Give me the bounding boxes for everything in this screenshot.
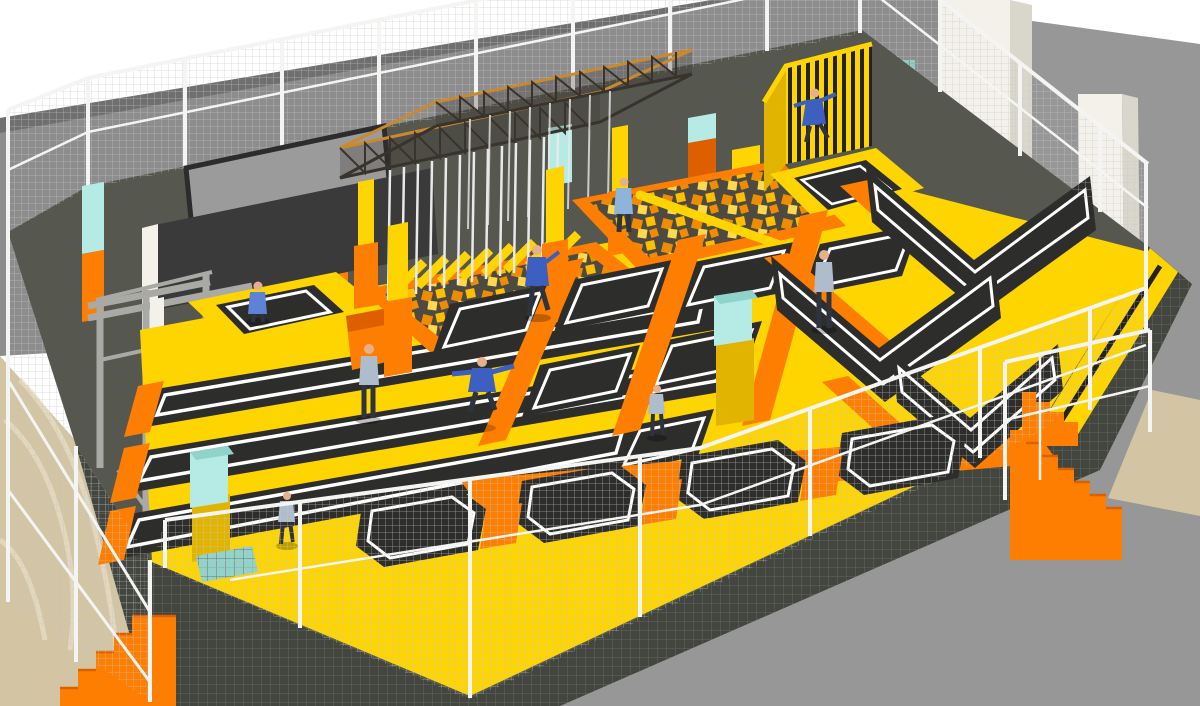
scene-canvas (0, 0, 1200, 706)
column-pad-center (714, 290, 758, 426)
trampoline-park-render: Indoor Trampoline Park 3D Render (0, 0, 1200, 706)
